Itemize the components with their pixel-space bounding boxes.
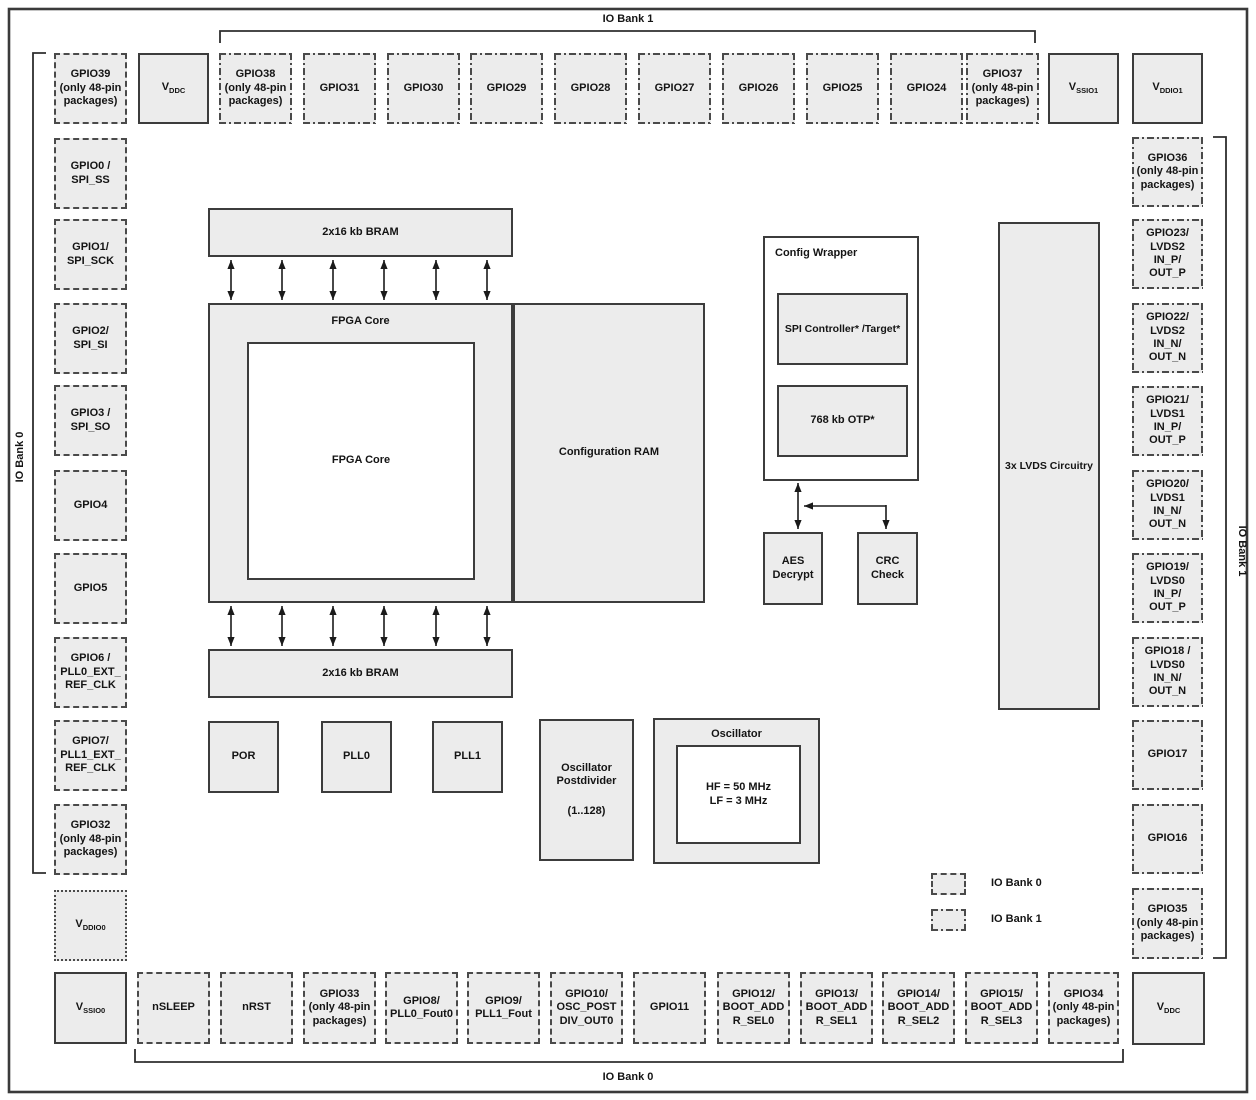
bottom-bank-label: IO Bank 0 (0, 1071, 1256, 1083)
oscillator-postdivider-range: (1..128) (568, 805, 606, 818)
gpio1-box: GPIO1/ SPI_SCK (54, 219, 127, 290)
legend-bank1-label: IO Bank 1 (991, 913, 1042, 925)
gpio36-box: GPIO36 (only 48-pin packages) (1132, 137, 1203, 207)
vddc-top-box: VDDC (138, 53, 209, 124)
gpio18-box: GPIO18 / LVDS0 IN_N/ OUT_N (1132, 637, 1203, 707)
gpio23-box: GPIO23/ LVDS2 IN_P/ OUT_P (1132, 219, 1203, 289)
gpio5-box: GPIO5 (54, 553, 127, 624)
gpio28-box: GPIO28 (554, 53, 627, 124)
vddio1-box: VDDIO1 (1132, 53, 1203, 124)
bram-bottom-box: 2x16 kb BRAM (208, 649, 513, 698)
oscillator-postdivider-box: Oscillator Postdivider (1..128) (539, 719, 634, 861)
gpio25-box: GPIO25 (806, 53, 879, 124)
fpga-block-diagram: IO Bank 1 IO Bank 0 IO Bank 0 IO Bank 1 … (0, 0, 1256, 1100)
configuration-ram-box: Configuration RAM (513, 303, 705, 603)
gpio13-box: GPIO13/ BOOT_ADD R_SEL1 (800, 972, 873, 1044)
fpga-core-title: FPGA Core (210, 315, 511, 328)
config-wrapper-title: Config Wrapper (775, 247, 857, 260)
pll1-box: PLL1 (432, 721, 503, 793)
gpio3-box: GPIO3 / SPI_SO (54, 385, 127, 456)
gpio38-box: GPIO38 (only 48-pin packages) (219, 53, 292, 124)
top-bank-label: IO Bank 1 (0, 13, 1256, 25)
vddc-bottom-sub: DDC (1164, 1007, 1180, 1016)
vssio1-sub: SSIO1 (1076, 87, 1098, 96)
gpio30-box: GPIO30 (387, 53, 460, 124)
gpio26-box: GPIO26 (722, 53, 795, 124)
fpga-core-inner-box: FPGA Core (247, 342, 475, 580)
gpio24-box: GPIO24 (890, 53, 963, 124)
config-wrapper-box: Config Wrapper SPI Controller* /Target* … (763, 236, 919, 481)
vssio0-box: VSSIO0 (54, 972, 127, 1044)
vddio0-box: VDDIO0 (54, 890, 127, 961)
bram-top-box: 2x16 kb BRAM (208, 208, 513, 257)
gpio29-box: GPIO29 (470, 53, 543, 124)
vddc-label: V (162, 81, 169, 93)
vddc-sub: DDC (169, 87, 185, 96)
gpio12-box: GPIO12/ BOOT_ADD R_SEL0 (717, 972, 790, 1044)
gpio9-box: GPIO9/ PLL1_Fout (467, 972, 540, 1044)
fpga-core-box: FPGA Core FPGA Core (208, 303, 513, 603)
vddio0-label: V (75, 918, 82, 930)
gpio39-box: GPIO39 (only 48-pin packages) (54, 53, 127, 124)
vddc-bottom-box: VDDC (1132, 972, 1205, 1045)
legend-bank1-swatch (931, 909, 966, 931)
gpio0-box: GPIO0 / SPI_SS (54, 138, 127, 209)
vddio1-sub: DDIO1 (1160, 87, 1183, 96)
gpio31-box: GPIO31 (303, 53, 376, 124)
nsleep-box: nSLEEP (137, 972, 210, 1044)
legend-bank0-swatch (931, 873, 966, 895)
lvds-circuitry-box: 3x LVDS Circuitry (998, 222, 1100, 710)
gpio8-box: GPIO8/ PLL0_Fout0 (385, 972, 458, 1044)
left-bank-label: IO Bank 0 (14, 420, 26, 494)
gpio16-box: GPIO16 (1132, 804, 1203, 874)
gpio15-box: GPIO15/ BOOT_ADD R_SEL3 (965, 972, 1038, 1044)
vddc-bottom-label: V (1157, 1001, 1164, 1013)
vssio1-box: VSSIO1 (1048, 53, 1119, 124)
gpio22-box: GPIO22/ LVDS2 IN_N/ OUT_N (1132, 303, 1203, 373)
gpio19-box: GPIO19/ LVDS0 IN_P/ OUT_P (1132, 553, 1203, 623)
nrst-box: nRST (220, 972, 293, 1044)
vssio0-sub: SSIO0 (83, 1006, 105, 1015)
gpio21-box: GPIO21/ LVDS1 IN_P/ OUT_P (1132, 386, 1203, 456)
left-bank-bracket (33, 53, 46, 873)
bottom-bank-bracket (135, 1049, 1123, 1062)
gpio14-box: GPIO14/ BOOT_ADD R_SEL2 (882, 972, 955, 1044)
gpio4-box: GPIO4 (54, 470, 127, 541)
legend-bank0-label: IO Bank 0 (991, 877, 1042, 889)
gpio7-box: GPIO7/ PLL1_EXT_ REF_CLK (54, 720, 127, 791)
gpio17-box: GPIO17 (1132, 720, 1203, 790)
gpio10-box: GPIO10/ OSC_POST DIV_OUT0 (550, 972, 623, 1044)
oscillator-box: Oscillator HF = 50 MHz LF = 3 MHz (653, 718, 820, 864)
gpio33-box: GPIO33 (only 48-pin packages) (303, 972, 376, 1044)
por-box: POR (208, 721, 279, 793)
gpio37-box: GPIO37 (only 48-pin packages) (966, 53, 1039, 124)
gpio20-box: GPIO20/ LVDS1 IN_N/ OUT_N (1132, 470, 1203, 540)
pll0-box: PLL0 (321, 721, 392, 793)
gpio34-box: GPIO34 (only 48-pin packages) (1048, 972, 1119, 1044)
top-bank-bracket (220, 31, 1035, 43)
vddio0-sub: DDIO0 (83, 924, 106, 933)
spi-controller-box: SPI Controller* /Target* (777, 293, 908, 365)
right-bank-bracket (1213, 137, 1226, 958)
gpio6-box: GPIO6 / PLL0_EXT_ REF_CLK (54, 637, 127, 708)
oscillator-postdivider-label: Oscillator Postdivider (557, 762, 617, 789)
gpio2-box: GPIO2/ SPI_SI (54, 303, 127, 374)
gpio11-box: GPIO11 (633, 972, 706, 1044)
oscillator-title: Oscillator (655, 728, 818, 741)
gpio32-box: GPIO32 (only 48-pin packages) (54, 804, 127, 875)
oscillator-freqs: HF = 50 MHz LF = 3 MHz (676, 745, 801, 844)
right-bank-label: IO Bank 1 (1236, 514, 1248, 588)
aes-decrypt-box: AES Decrypt (763, 532, 823, 605)
crc-check-box: CRC Check (857, 532, 918, 605)
otp-box: 768 kb OTP* (777, 385, 908, 457)
gpio35-box: GPIO35 (only 48-pin packages) (1132, 888, 1203, 959)
vddio1-label: V (1152, 81, 1159, 93)
gpio27-box: GPIO27 (638, 53, 711, 124)
